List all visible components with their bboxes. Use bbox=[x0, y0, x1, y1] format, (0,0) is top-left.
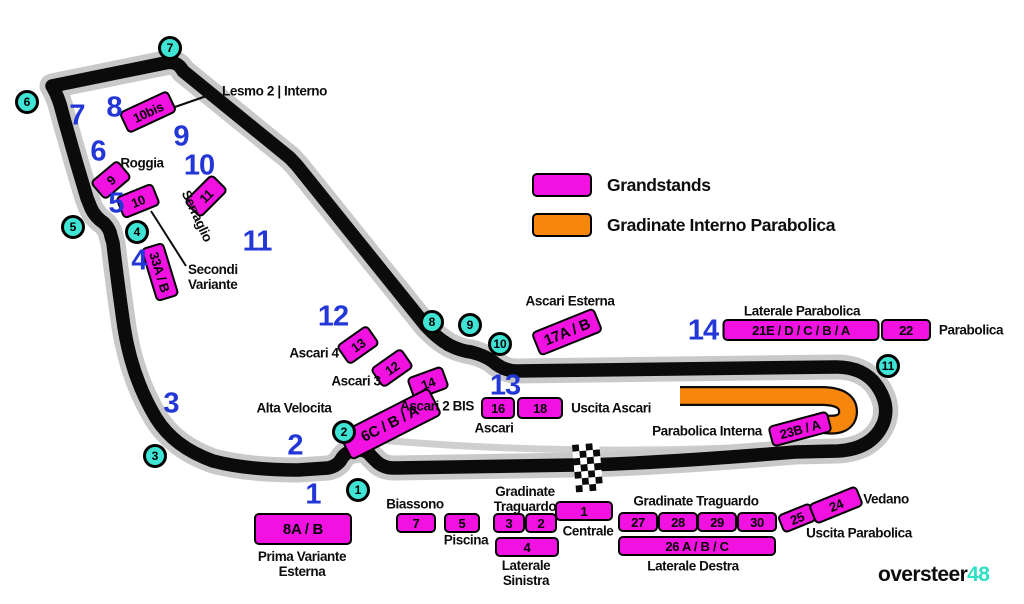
checker-cell bbox=[579, 451, 586, 458]
label-laterale-parabolica: Laterale Parabolica bbox=[744, 303, 860, 318]
grandstand-8ab: 8A / B bbox=[254, 513, 352, 545]
turn-marker-1: 1 bbox=[346, 478, 370, 502]
legend-item-gradinate: Gradinate Interno Parabolica bbox=[532, 213, 835, 237]
turn-marker-10: 10 bbox=[488, 332, 512, 356]
checker-cell bbox=[574, 472, 581, 479]
turn-marker-8: 8 bbox=[420, 310, 444, 334]
checker-cell bbox=[589, 477, 596, 484]
grandstands-color-swatch bbox=[532, 173, 592, 197]
checker-cell bbox=[579, 444, 586, 451]
label-roggia: Roggia bbox=[120, 155, 163, 170]
label-parabolica: Parabolica bbox=[939, 322, 1003, 337]
checker-cell bbox=[574, 465, 581, 472]
checker-cell bbox=[581, 464, 588, 471]
checker-cell bbox=[572, 444, 579, 451]
section-number-1: 1 bbox=[305, 479, 320, 512]
label-uscita-parabolica: Uscita Parabolica bbox=[806, 525, 912, 540]
section-number-4: 4 bbox=[131, 245, 146, 278]
checker-cell bbox=[575, 478, 582, 485]
checker-cell bbox=[586, 443, 593, 450]
turn-marker-7: 7 bbox=[158, 36, 182, 60]
section-number-8: 8 bbox=[106, 92, 121, 125]
label-gradinate-traguardo-left: GradinateTraguardo bbox=[494, 484, 556, 514]
checker-cell bbox=[593, 449, 600, 456]
label-gradinate-traguardo-right: Gradinate Traguardo bbox=[633, 493, 758, 508]
label-centrale: Centrale bbox=[563, 523, 614, 538]
grandstand-3: 3 bbox=[493, 513, 525, 533]
label-vedano: Vedano bbox=[863, 491, 909, 506]
checker-cell bbox=[582, 484, 589, 491]
legend-label-grandstands: Grandstands bbox=[607, 175, 711, 196]
checker-cell bbox=[580, 457, 587, 464]
section-number-14: 14 bbox=[688, 315, 718, 348]
turn-marker-6: 6 bbox=[15, 90, 39, 114]
label-lesmo-2-interno: Lesmo 2 | Interno bbox=[222, 83, 327, 98]
legend-item-grandstands: Grandstands bbox=[532, 173, 711, 197]
monza-circuit-map: Grandstands Gradinate Interno Parabolica… bbox=[0, 0, 1024, 604]
grandstand-5: 5 bbox=[444, 513, 480, 533]
checker-cell bbox=[573, 458, 580, 465]
section-number-7: 7 bbox=[69, 100, 84, 133]
label-prima-variante-esterna: Prima VarianteEsterna bbox=[258, 549, 346, 579]
grandstand-30: 30 bbox=[737, 512, 777, 532]
grandstand-26abc: 26 A / B / C bbox=[618, 536, 776, 556]
section-number-3: 3 bbox=[163, 388, 178, 421]
turn-marker-5: 5 bbox=[61, 215, 85, 239]
checker-cell bbox=[587, 457, 594, 464]
checker-cell bbox=[595, 470, 602, 477]
label-ascari-2-bis: Ascari 2 BIS bbox=[400, 398, 474, 413]
turn-marker-4: 4 bbox=[125, 220, 149, 244]
checker-cell bbox=[595, 476, 602, 483]
grandstand-7: 7 bbox=[396, 513, 436, 533]
label-alta-velocita: Alta Velocita bbox=[256, 400, 331, 415]
checker-cell bbox=[586, 450, 593, 457]
grandstand-29: 29 bbox=[697, 512, 737, 532]
section-number-6: 6 bbox=[90, 136, 105, 169]
label-laterale-sinistra: LateraleSinistra bbox=[502, 558, 551, 588]
watermark-suffix: 48 bbox=[967, 563, 989, 586]
turn-marker-3: 3 bbox=[143, 444, 167, 468]
section-number-13: 13 bbox=[490, 370, 520, 403]
watermark-brand: oversteer bbox=[878, 563, 967, 586]
label-ascari-esterna: Ascari Esterna bbox=[526, 293, 615, 308]
checker-cell bbox=[581, 471, 588, 478]
checker-cell bbox=[576, 485, 583, 492]
turn-marker-11: 11 bbox=[876, 354, 900, 378]
label-ascari-3: Ascari 3 bbox=[331, 373, 380, 388]
grandstand-28: 28 bbox=[658, 512, 698, 532]
checker-cell bbox=[592, 443, 599, 450]
label-uscita-ascari: Uscita Ascari bbox=[571, 400, 651, 415]
label-ascari-4: Ascari 4 bbox=[289, 345, 338, 360]
grandstand-1: 1 bbox=[555, 501, 613, 521]
start-finish-checkered-line bbox=[572, 443, 603, 493]
checker-cell bbox=[587, 464, 594, 471]
label-ascari: Ascari bbox=[475, 420, 514, 435]
section-number-12: 12 bbox=[318, 301, 348, 334]
section-number-11: 11 bbox=[243, 226, 272, 259]
label-biassono: Biassono bbox=[386, 496, 444, 511]
grandstand-4: 4 bbox=[495, 537, 559, 557]
label-piscina: Piscina bbox=[444, 532, 488, 547]
checker-cell bbox=[594, 463, 601, 470]
section-number-10: 10 bbox=[184, 150, 214, 183]
grandstand-18: 18 bbox=[517, 397, 563, 419]
checker-cell bbox=[573, 451, 580, 458]
grandstand-2: 2 bbox=[525, 513, 557, 533]
checker-cell bbox=[589, 484, 596, 491]
checker-cell bbox=[588, 470, 595, 477]
checker-cell bbox=[596, 483, 603, 490]
section-number-5: 5 bbox=[108, 188, 123, 221]
turn-marker-2: 2 bbox=[332, 420, 356, 444]
checker-cell bbox=[594, 456, 601, 463]
checker-cell bbox=[582, 478, 589, 485]
label-laterale-destra: Laterale Destra bbox=[647, 558, 739, 573]
legend-label-gradinate: Gradinate Interno Parabolica bbox=[607, 215, 835, 236]
grandstand-21edcba: 21E / D / C / B / A bbox=[723, 319, 880, 341]
gradinate-color-swatch bbox=[532, 213, 592, 237]
grandstand-22: 22 bbox=[881, 319, 931, 341]
grandstand-27: 27 bbox=[618, 512, 658, 532]
turn-marker-9: 9 bbox=[458, 313, 482, 337]
section-number-2: 2 bbox=[287, 430, 302, 463]
watermark: oversteer48 bbox=[878, 563, 989, 587]
label-secondi-variante: SecondiVariante bbox=[188, 262, 238, 292]
label-parabolica-interna: Parabolica Interna bbox=[652, 423, 762, 438]
